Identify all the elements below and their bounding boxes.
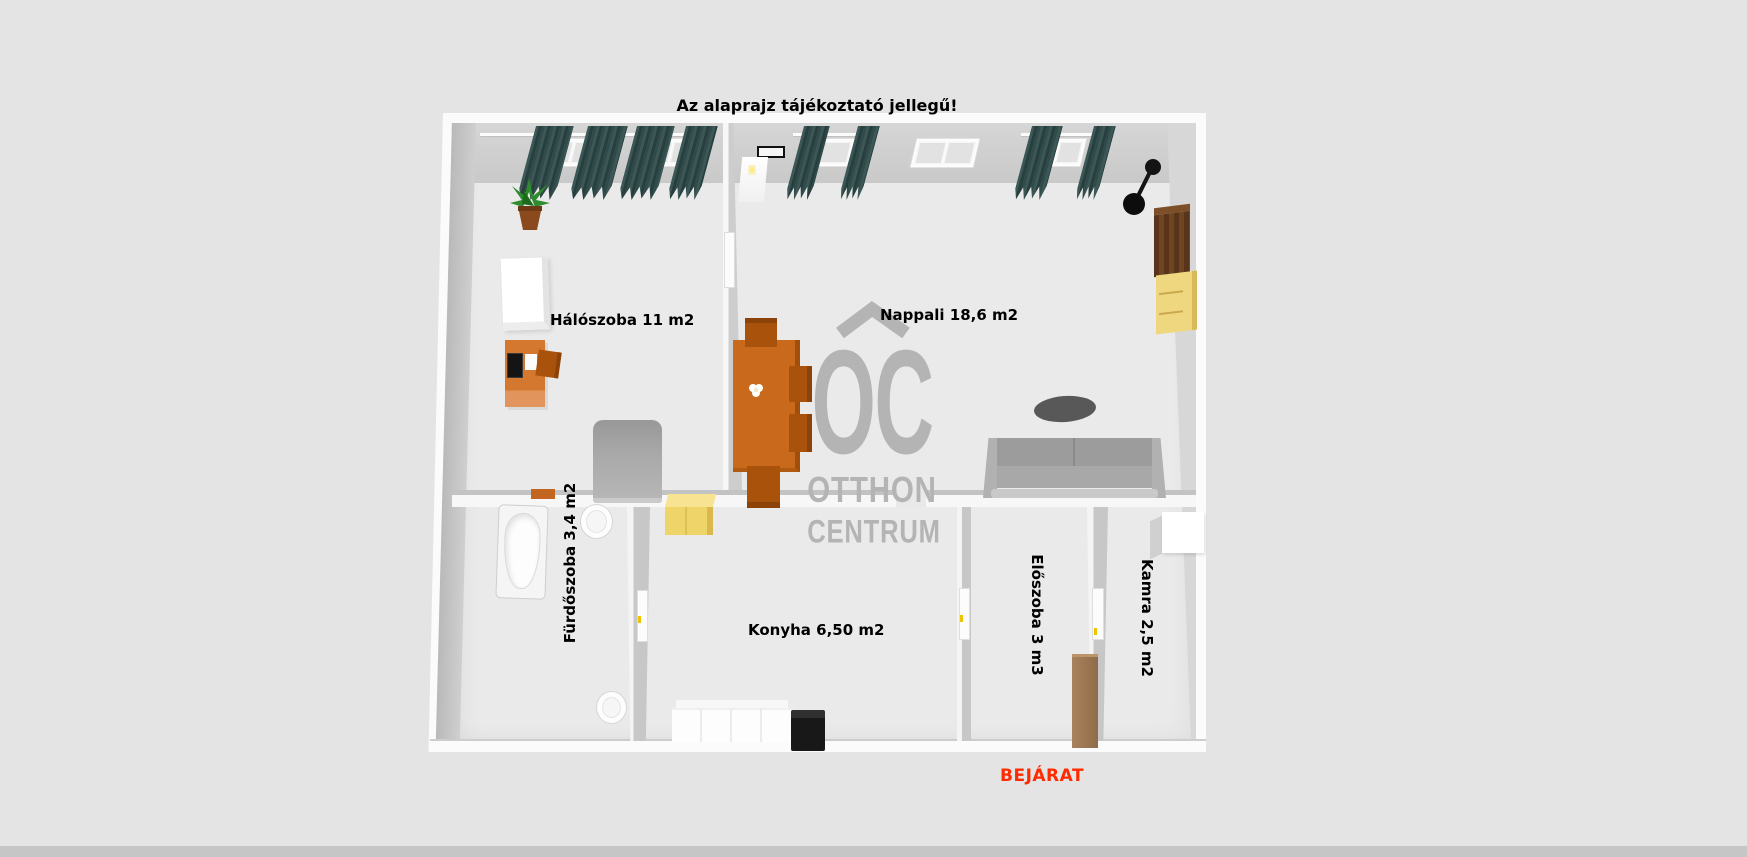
- sofa-base: [991, 489, 1158, 498]
- desk-chair: [535, 350, 561, 379]
- dining-table: [733, 340, 800, 472]
- drawer-seam: [1159, 290, 1183, 295]
- bed: [593, 420, 662, 503]
- counter-seam: [700, 708, 702, 742]
- pot-body: [519, 211, 541, 230]
- bathtub: [495, 504, 548, 600]
- bathroom-door-handle: [638, 616, 641, 623]
- kitchen-counter: [672, 708, 791, 742]
- pantry-shelf: [1162, 512, 1204, 553]
- label-bedroom: Hálószoba 11 m2: [550, 311, 694, 329]
- label-pantry: Kamra 2,5 m2: [1138, 559, 1156, 677]
- hall-door-left: [959, 588, 970, 640]
- disclaimer-title: Az alaprajz tájékoztató jellegű!: [676, 96, 957, 115]
- sofa-seat: [997, 466, 1152, 488]
- sofa: [983, 438, 1166, 498]
- dining-chair-bottom: [747, 466, 780, 508]
- kitchen-cabinet: [665, 494, 713, 535]
- page-bottom-strip: [0, 846, 1747, 857]
- label-living: Nappali 18,6 m2: [880, 306, 1018, 324]
- window-pane: [943, 142, 975, 164]
- fridge-decal: [748, 165, 756, 175]
- bedroom-door: [724, 232, 735, 288]
- bathroom-door-mat: [531, 489, 555, 499]
- dining-chair-right: [789, 366, 812, 402]
- floor-plan-page: Az alaprajz tájékoztató jellegű!: [0, 0, 1747, 857]
- dining-chair-right: [789, 414, 812, 452]
- cabinet-side: [707, 507, 713, 535]
- cabinet-top: [665, 494, 716, 507]
- table-flower: [748, 382, 764, 398]
- washbasin: [580, 504, 613, 539]
- dining-chair-top: [745, 318, 777, 347]
- lamp-shade: [1145, 159, 1161, 175]
- drawer-seam: [1159, 310, 1183, 315]
- hall-door-right-handle: [1094, 628, 1097, 635]
- potted-plant: [508, 176, 550, 234]
- entrance-label: BEJÁRAT: [1000, 766, 1084, 786]
- cabinet-yellow: [1156, 270, 1197, 334]
- wardrobe: [501, 257, 550, 331]
- pot-rim: [518, 206, 542, 211]
- kitchen-living-opening: [896, 490, 926, 507]
- living-window-center: [911, 139, 979, 167]
- sofa-back-cushion: [1075, 438, 1152, 466]
- fridge: [738, 157, 768, 202]
- window-pane: [914, 142, 946, 164]
- wall-frame: [757, 146, 785, 158]
- label-hall: Előszoba 3 m3: [1028, 554, 1046, 675]
- lamp-base: [1123, 193, 1145, 215]
- outer-wall-right: [1196, 113, 1206, 752]
- counter-seam: [730, 708, 732, 742]
- toilet: [596, 691, 627, 724]
- counter-seam: [760, 708, 762, 742]
- cabinet-front: [665, 507, 707, 535]
- window-pane: [1056, 142, 1083, 163]
- floor: [451, 123, 1197, 741]
- hall-door-left-handle: [960, 615, 963, 622]
- label-bathroom: Fürdőszoba 3,4 m2: [561, 483, 579, 644]
- hall-cabinet: [1072, 654, 1098, 748]
- sofa-back-cushion: [997, 438, 1075, 466]
- label-kitchen: Konyha 6,50 m2: [748, 621, 884, 639]
- desk-monitor: [507, 353, 523, 378]
- cabinet-dark-brown: [1154, 204, 1190, 277]
- desk-paper: [525, 354, 537, 370]
- stove: [791, 710, 825, 751]
